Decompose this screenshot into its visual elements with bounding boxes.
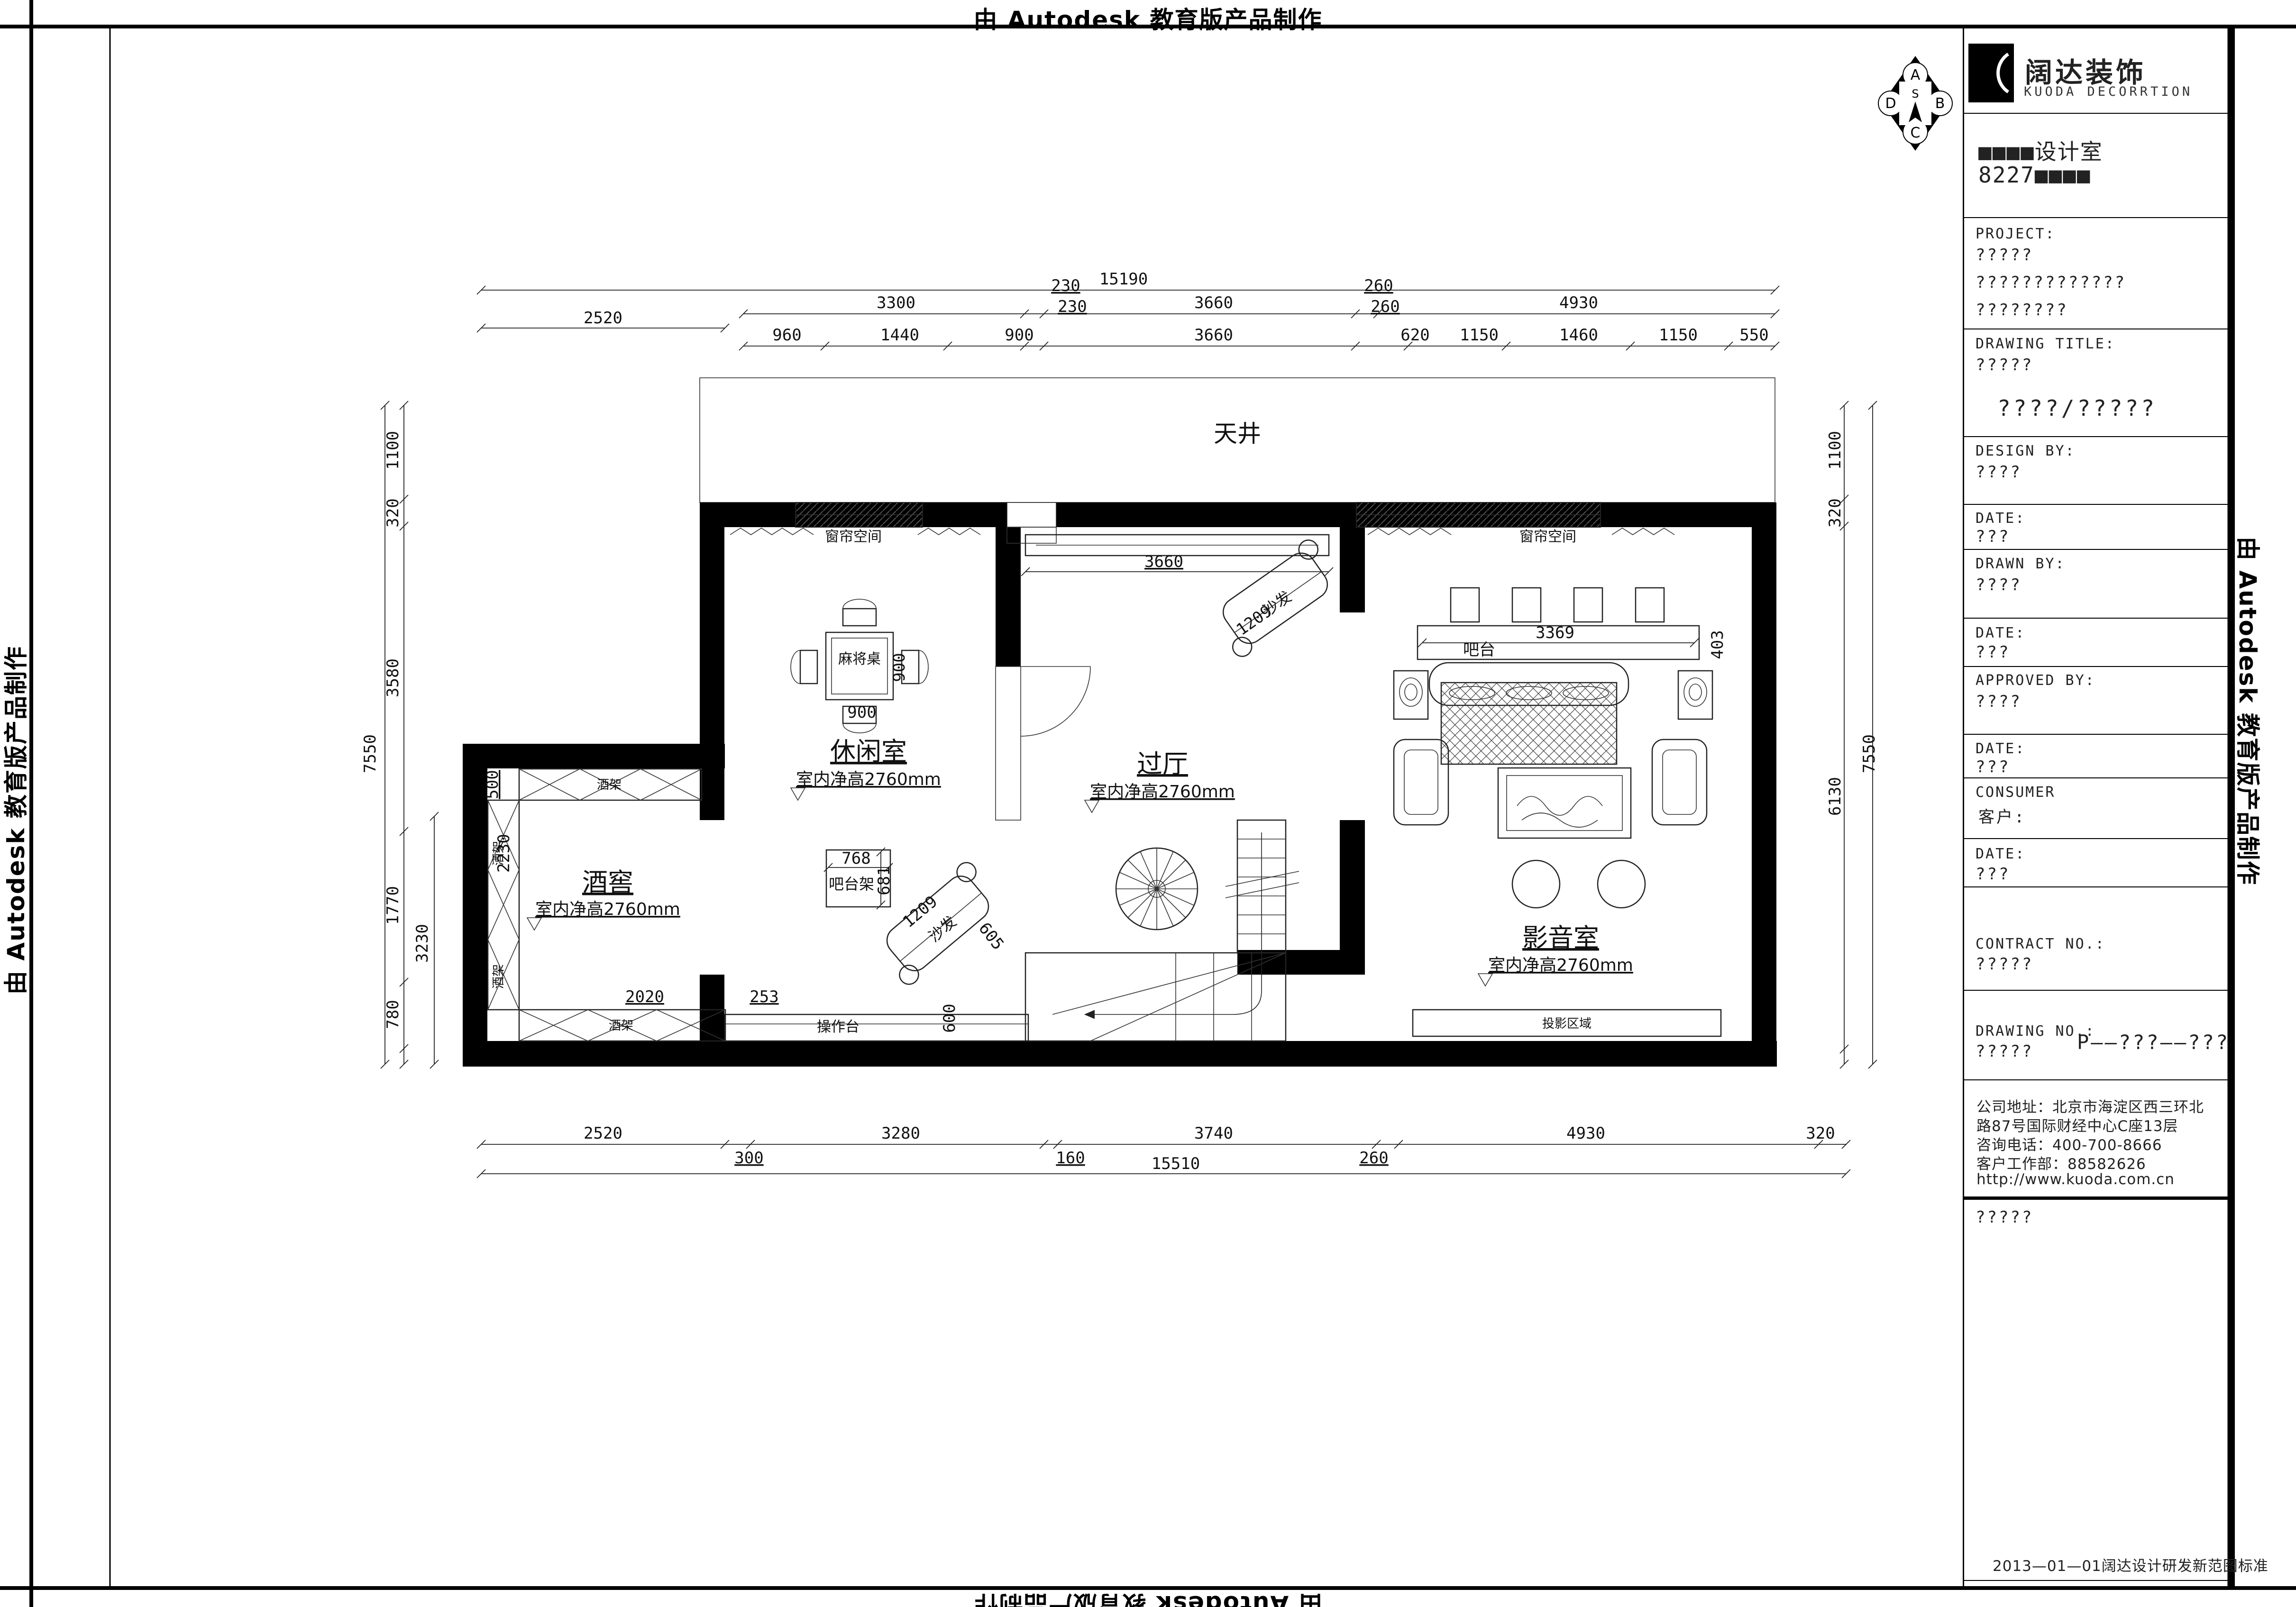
date2-value: ???: [1976, 643, 2010, 662]
contract-label: CONTRACT NO.:: [1976, 936, 2105, 952]
tb-sep: [1964, 113, 2230, 114]
dim-text: 6130: [1826, 777, 1845, 816]
dim-text: 7550: [1860, 734, 1879, 773]
tb-sep: [1964, 504, 2230, 505]
plan-label: 麻将桌: [838, 651, 881, 667]
dim-text: 260: [1359, 1149, 1388, 1168]
dim-text: 15190: [1099, 270, 1148, 289]
project-value1: ?????: [1976, 246, 2033, 265]
drawing-title-big: ????/?????: [1997, 395, 2157, 421]
dim-text: 3660: [1144, 552, 1183, 571]
dim-text: 605: [975, 919, 1007, 954]
armchair-left: [1394, 740, 1448, 825]
compass-b: B: [1935, 95, 1945, 112]
plan-label: 吧台: [1463, 640, 1495, 659]
footer-standard-note: 2013—01—01阔达设计研发新范图标准: [1993, 1554, 2269, 1575]
date4-label: DATE:: [1976, 846, 2025, 862]
approved-by-value: ????: [1976, 692, 2022, 711]
tb-sep: [1964, 1580, 2230, 1581]
drawing-frame: [110, 27, 2228, 1588]
plan-label: 酒架: [492, 964, 506, 989]
dim-text: 320: [1826, 498, 1845, 527]
compass-c: C: [1911, 125, 1921, 141]
dim-text: 320: [1806, 1124, 1835, 1143]
plan-label: 室内净高2760mm: [1090, 782, 1235, 802]
compass-d: D: [1885, 95, 1896, 112]
armchair-right: [1652, 740, 1707, 825]
date4-value: ???: [1976, 865, 2010, 884]
floor-plan: A B C D S 151902520330023023036602602604…: [0, 0, 2296, 1607]
plan-label: 酒架: [597, 778, 622, 792]
dim-text: 2520: [584, 1124, 622, 1143]
design-by-value: ????: [1976, 463, 2022, 482]
dim-text: 1150: [1460, 326, 1499, 345]
dim-text: 3230: [413, 924, 432, 963]
tb-sep: [1964, 777, 2230, 778]
address-line1: 公司地址：北京市海淀区西三环北: [1976, 1095, 2204, 1116]
dim-text: 4930: [1566, 1124, 1605, 1143]
dim-text: 768: [842, 849, 870, 868]
plan-label: 酒架: [492, 841, 506, 866]
dim-text: 600: [940, 1004, 959, 1032]
dim-text: 620: [1400, 326, 1429, 345]
dim-text: 1770: [384, 886, 402, 925]
plan-label: 室内净高2760mm: [1488, 956, 1633, 975]
dim-text: 300: [734, 1149, 763, 1168]
dim-text: 230: [1051, 276, 1080, 295]
dim-text: 230: [1058, 297, 1087, 316]
plan-label: 室内净高2760mm: [796, 770, 941, 789]
work-counter: [725, 1014, 1028, 1041]
dim-text: 500: [483, 770, 502, 799]
tb-sep: [1964, 1079, 2230, 1080]
plan-label: 过厅: [1137, 749, 1188, 779]
dim-text: 900: [847, 703, 876, 722]
compass-s: S: [1912, 87, 1919, 100]
dim-text: 4930: [1559, 293, 1598, 312]
dim-text: 681: [875, 866, 894, 895]
compass-icon: A B C D S: [1878, 56, 1952, 151]
plan-label: 沙发: [925, 912, 960, 945]
dim-text: 1460: [1559, 326, 1598, 345]
dim-text: 1100: [1826, 431, 1845, 470]
plan-label: 天井: [1214, 420, 1261, 447]
consumer-label: CONSUMER: [1976, 784, 2056, 801]
dim-text: 3660: [1194, 293, 1233, 312]
tb-sep: [1964, 329, 2230, 329]
staircase: [1025, 820, 1299, 1041]
drawn-by-value: ????: [1976, 575, 2022, 594]
notes-value: ?????: [1976, 1208, 2033, 1227]
dim-text: 253: [750, 987, 778, 1006]
tb-sep: [1964, 990, 2230, 991]
plan-label: 操作台: [817, 1019, 860, 1035]
plan-label: 影音室: [1522, 923, 1599, 953]
tb-sep: [1964, 886, 2230, 887]
date3-value: ???: [1976, 758, 2010, 776]
tb-sep: [1964, 618, 2230, 619]
dim-text: 15510: [1152, 1154, 1200, 1173]
plan-label: 窗帘空间: [1519, 529, 1576, 545]
dim-text: 2020: [625, 987, 664, 1006]
tb-sep: [1964, 734, 2230, 735]
plan-label: 吧台架: [829, 875, 874, 893]
dim-text: 3740: [1194, 1124, 1233, 1143]
tb-sep: [1964, 436, 2230, 437]
design-by-label: DESIGN BY:: [1976, 443, 2076, 459]
plan-label: 休闲室: [830, 737, 907, 767]
poufs: [1512, 860, 1645, 908]
project-label: PROJECT:: [1976, 226, 2056, 242]
dim-text: 900: [1005, 326, 1034, 345]
dim-text: 3580: [384, 658, 402, 697]
dim-text: 3300: [877, 293, 915, 312]
speaker-left: [1394, 671, 1428, 719]
date2-label: DATE:: [1976, 625, 2025, 641]
speaker-right: [1678, 671, 1712, 719]
round-ornament: [1116, 848, 1198, 930]
tb-sep: [1964, 217, 2230, 218]
address-line5: http://www.kuoda.com.cn: [1976, 1171, 2175, 1188]
brand-name-en: KUODA DECORRTION: [2024, 84, 2193, 99]
dim-text: 320: [384, 498, 402, 527]
dim-text: 260: [1371, 297, 1400, 316]
dim-text: 2520: [584, 309, 622, 328]
dim-text: 403: [1708, 630, 1727, 659]
dim-text: 3660: [1194, 326, 1233, 345]
dim-text: 160: [1056, 1149, 1085, 1168]
plan-label: 窗帘空间: [825, 529, 882, 545]
dim-text: 900: [890, 653, 909, 682]
date3-label: DATE:: [1976, 740, 2025, 757]
tb-sep: [1964, 838, 2230, 839]
consumer-value: 客户:: [1978, 804, 2026, 827]
window-right: [1356, 502, 1601, 527]
dim-text: 1440: [880, 326, 919, 345]
dim-text: 7550: [361, 734, 380, 773]
drawing-title-value: ?????: [1976, 356, 2033, 374]
address-line2: 路87号国际财经中心C座13层: [1976, 1114, 2178, 1135]
date1-label: DATE:: [1976, 510, 2025, 527]
date1-value: ???: [1976, 527, 2010, 546]
drawn-by-label: DRAWN BY:: [1976, 556, 2066, 572]
door-openings: [996, 667, 1090, 820]
address-line3: 咨询电话：400-700-8666: [1976, 1133, 2162, 1154]
dim-text: 3280: [881, 1124, 920, 1143]
compass-a: A: [1911, 67, 1921, 83]
project-value3: ????????: [1976, 301, 2068, 320]
rug: [1498, 768, 1631, 838]
drawing-no-big: P——???——???: [2077, 1031, 2230, 1054]
project-value2: ?????????????: [1976, 273, 2126, 292]
tb-sep-thick: [1964, 1196, 2230, 1200]
dim-text: 1150: [1659, 326, 1698, 345]
contract-value: ?????: [1976, 955, 2033, 974]
plan-label: 酒架: [609, 1019, 633, 1033]
plan-label: 室内净高2760mm: [535, 900, 680, 919]
dim-text: 550: [1739, 326, 1768, 345]
title-block: 阔达装饰 KUODA DECORRTION ■■■■设计室 8227■■■■ P…: [1963, 27, 2230, 1588]
theater-sofa: [1429, 663, 1628, 764]
studio-line2: 8227■■■■: [1978, 162, 2091, 188]
plan-label: 投影区域: [1542, 1017, 1592, 1031]
drawing-title-label: DRAWING TITLE:: [1976, 336, 2115, 352]
dim-text: 3369: [1536, 623, 1574, 642]
dim-text: 780: [384, 1000, 402, 1029]
address-line4: 客户工作部：88582626: [1976, 1152, 2146, 1173]
dim-text: 1100: [384, 431, 402, 470]
studio-line1: ■■■■设计室: [1978, 135, 2103, 166]
dim-text: 260: [1364, 276, 1393, 295]
tb-sep: [1964, 666, 2230, 667]
plan-label: 酒窖: [582, 867, 633, 897]
window-left: [796, 502, 923, 527]
cad-sheet: 由 Autodesk 教育版产品制作 由 Autodesk 教育版产品制作 由 …: [0, 0, 2296, 1607]
tb-sep: [1964, 549, 2230, 550]
drawing-no-value: ?????: [1976, 1042, 2033, 1061]
approved-by-label: APPROVED BY:: [1976, 672, 2095, 689]
dim-text: 960: [772, 326, 801, 345]
